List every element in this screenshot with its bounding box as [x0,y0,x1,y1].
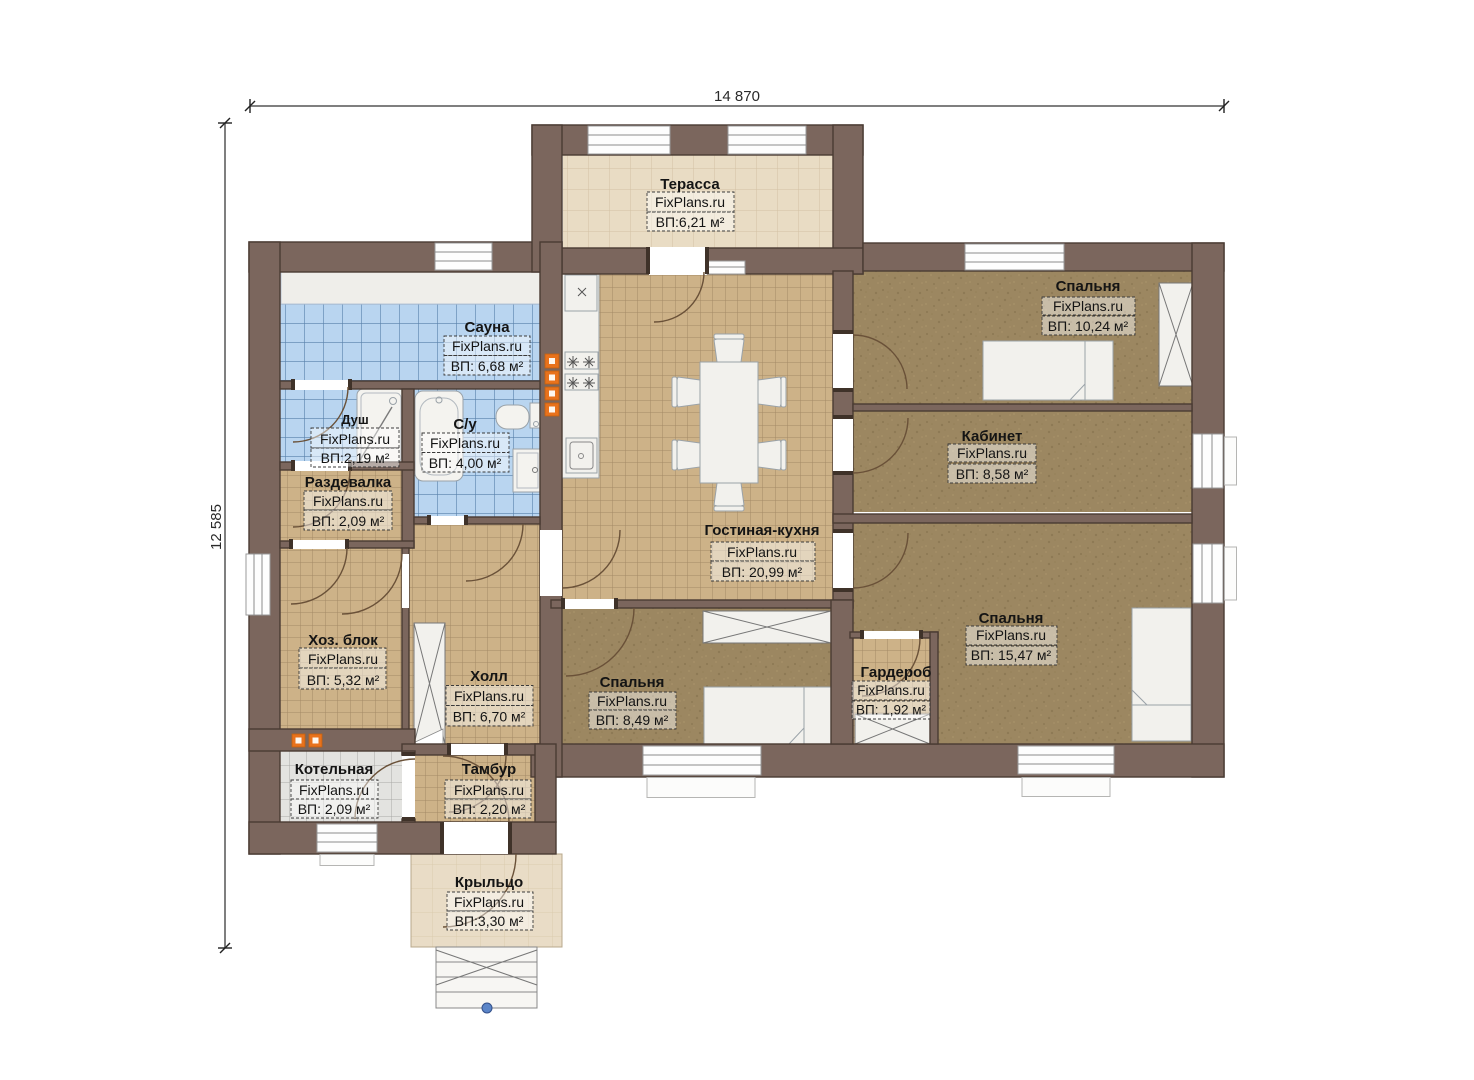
svg-text:Гостиная-кухня: Гостиная-кухня [705,522,820,539]
svg-text:FixPlans.ru: FixPlans.ru [1053,298,1123,314]
svg-text:С/у: С/у [453,416,477,433]
svg-text:Тамбур: Тамбур [462,761,516,778]
svg-text:FixPlans.ru: FixPlans.ru [320,431,390,447]
svg-text:FixPlans.ru: FixPlans.ru [857,683,925,698]
svg-text:ВП:6,21 м²: ВП:6,21 м² [656,214,725,230]
svg-text:Спальня: Спальня [600,674,665,691]
svg-text:Спальня: Спальня [979,610,1044,627]
svg-text:FixPlans.ru: FixPlans.ru [957,445,1027,461]
svg-text:FixPlans.ru: FixPlans.ru [727,544,797,560]
svg-text:14 870: 14 870 [714,88,760,105]
svg-text:ВП: 5,32 м²: ВП: 5,32 м² [307,672,380,688]
svg-text:Хоз. блок: Хоз. блок [308,632,378,649]
svg-text:FixPlans.ru: FixPlans.ru [655,194,725,210]
svg-text:FixPlans.ru: FixPlans.ru [976,627,1046,643]
svg-text:ВП: 2,09 м²: ВП: 2,09 м² [312,513,385,529]
svg-text:Спальня: Спальня [1056,278,1121,295]
svg-text:FixPlans.ru: FixPlans.ru [454,894,524,910]
svg-text:Терасса: Терасса [660,176,720,193]
svg-text:ВП: 6,68 м²: ВП: 6,68 м² [451,358,524,374]
svg-text:ВП: 15,47 м²: ВП: 15,47 м² [971,647,1052,663]
svg-text:FixPlans.ru: FixPlans.ru [452,338,522,354]
svg-text:Раздевалка: Раздевалка [305,474,392,491]
svg-text:Холл: Холл [470,668,508,685]
svg-text:FixPlans.ru: FixPlans.ru [454,782,524,798]
svg-text:ВП: 20,99 м²: ВП: 20,99 м² [722,564,803,580]
svg-text:FixPlans.ru: FixPlans.ru [597,693,667,709]
svg-text:ВП: 6,70 м²: ВП: 6,70 м² [453,709,526,725]
svg-text:Гардероб: Гардероб [861,664,932,681]
svg-text:FixPlans.ru: FixPlans.ru [454,688,524,704]
svg-text:12 585: 12 585 [208,504,225,550]
svg-text:ВП: 10,24 м²: ВП: 10,24 м² [1048,318,1129,334]
svg-text:Сауна: Сауна [464,319,510,336]
svg-text:Котельная: Котельная [295,761,374,778]
svg-text:ВП: 8,49 м²: ВП: 8,49 м² [596,712,669,728]
svg-text:FixPlans.ru: FixPlans.ru [313,493,383,509]
svg-text:ВП: 1,92 м²: ВП: 1,92 м² [856,703,927,718]
svg-text:ВП:3,30 м²: ВП:3,30 м² [455,913,524,929]
svg-text:FixPlans.ru: FixPlans.ru [299,782,369,798]
svg-text:FixPlans.ru: FixPlans.ru [430,435,500,451]
svg-text:ВП: 8,58 м²: ВП: 8,58 м² [956,466,1029,482]
svg-text:FixPlans.ru: FixPlans.ru [308,651,378,667]
svg-text:ВП:2,19 м²: ВП:2,19 м² [321,450,390,466]
svg-text:Кабинет: Кабинет [962,428,1023,445]
svg-text:ВП: 4,00 м²: ВП: 4,00 м² [429,455,502,471]
svg-text:Душ: Душ [341,412,369,427]
svg-text:ВП: 2,20 м²: ВП: 2,20 м² [453,801,526,817]
svg-text:ВП: 2,09 м²: ВП: 2,09 м² [298,801,371,817]
svg-text:Крыльцо: Крыльцо [455,874,523,891]
